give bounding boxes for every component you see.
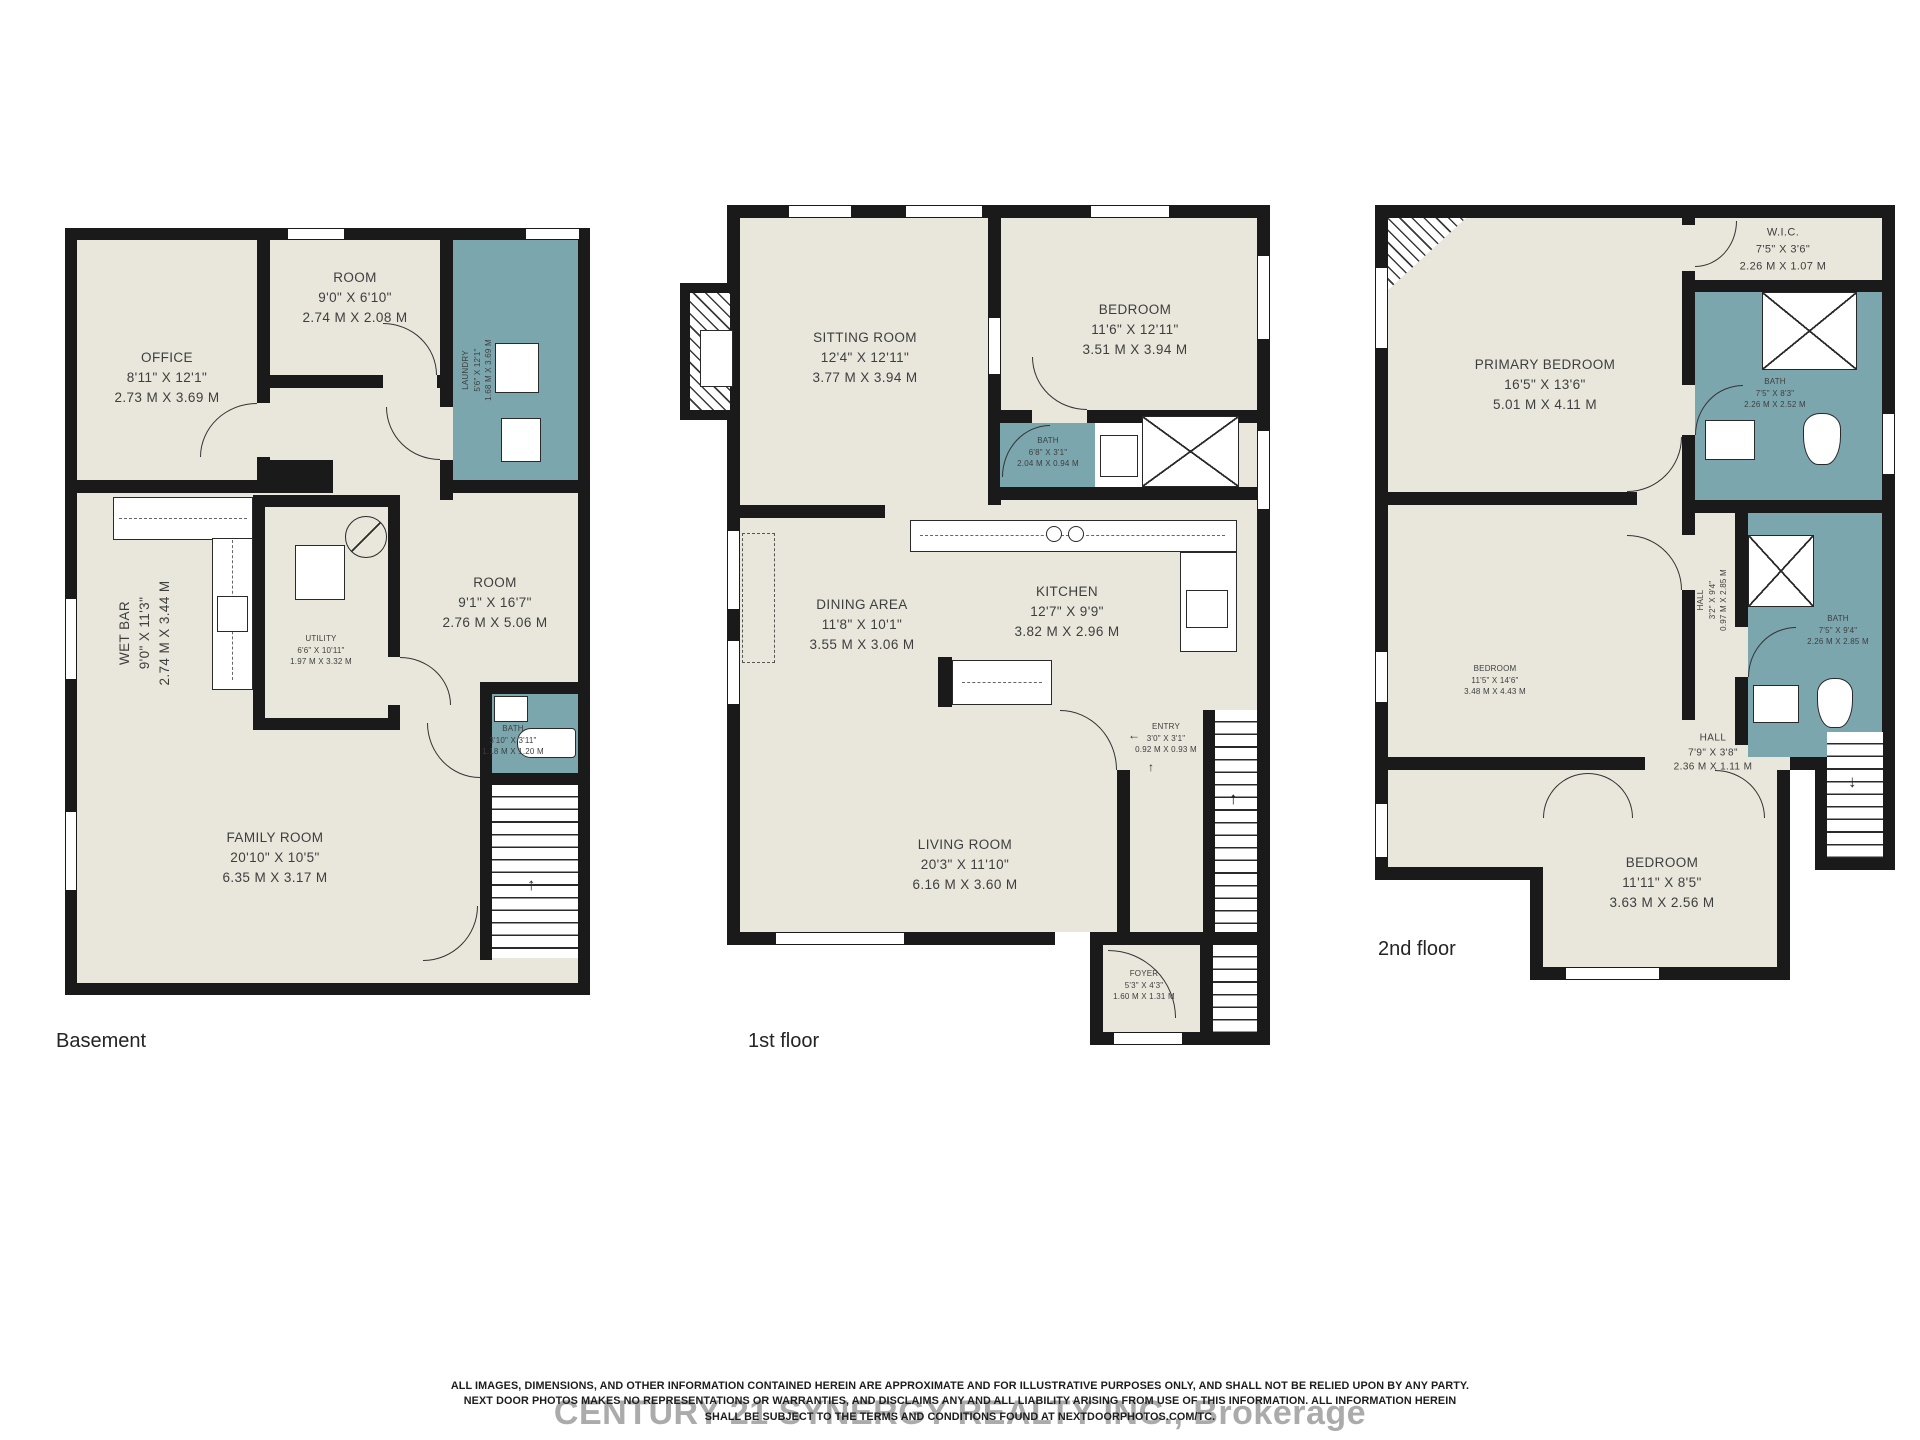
window: [1090, 205, 1170, 218]
room-name: W.I.C.: [1740, 225, 1827, 242]
floor-basement: ↑ OFFICE 8'11" X 12'1" 2.73 M X 3.69 M: [65, 228, 590, 995]
room-label-primary-bedroom: PRIMARY BEDROOM 16'5" X 13'6" 5.01 M X 4…: [1475, 355, 1616, 415]
room-label-bath: BATH 6'8" X 3'1" 2.04 M X 0.94 M: [1017, 435, 1079, 470]
room-label-sitting: SITTING ROOM 12'4" X 12'11" 3.77 M X 3.9…: [812, 328, 917, 388]
window: [905, 205, 983, 218]
window: [287, 228, 345, 240]
room-dim-metric: 2.74 M X 3.44 M: [155, 580, 175, 685]
room-dim-metric: 6.35 M X 3.17 M: [222, 868, 327, 888]
wall: [453, 480, 578, 493]
room-name: WET BAR: [115, 580, 135, 685]
room-dim-imperial: 3'2" X 9'4": [1706, 569, 1718, 631]
toilet-icon: [1803, 413, 1841, 465]
floor-first: ↑ ← ↑ SITTING ROOM 12'4" X 12'11" 3.77 M…: [680, 205, 1270, 1045]
kitchen-sink-icon: [1186, 590, 1228, 628]
room-dim-metric: 1.60 M X 1.31 M: [1113, 991, 1175, 1003]
room-name: OFFICE: [114, 348, 219, 368]
wall: [1735, 513, 1748, 627]
room-dim-metric: 6.16 M X 3.60 M: [912, 875, 1017, 895]
room-dim-metric: 2.74 M X 2.08 M: [302, 308, 407, 328]
disclaimer-line: SHALL BE SUBJECT TO THE TERMS AND CONDIT…: [0, 1410, 1920, 1425]
stair-landing-steps: [1213, 945, 1257, 1032]
pocket-door: [988, 317, 1001, 375]
room-name: HALL: [1695, 569, 1707, 631]
wall: [77, 480, 270, 493]
wall: [1695, 280, 1882, 292]
wall: [440, 460, 453, 500]
window: [788, 205, 852, 218]
wall: [440, 240, 453, 407]
room-dim-metric: 3.51 M X 3.94 M: [1082, 340, 1187, 360]
room-label-wet-bar: WET BAR 9'0" X 11'3" 2.74 M X 3.44 M: [115, 580, 175, 685]
room-dim-imperial: 7'5" X 8'3": [1744, 387, 1806, 399]
wall: [988, 218, 1001, 317]
wall: [1682, 505, 1695, 535]
wall: [388, 705, 400, 730]
room-label-office: OFFICE 8'11" X 12'1" 2.73 M X 3.69 M: [114, 348, 219, 408]
room-dim-metric: 2.04 M X 0.94 M: [1017, 458, 1079, 470]
room-name: ROOM: [302, 268, 407, 288]
room-dim-metric: 2.36 M X 1.11 M: [1674, 760, 1753, 775]
room-label-foyer: FOYER 5'3" X 4'3" 1.60 M X 1.31 M: [1113, 968, 1175, 1003]
window: [1257, 430, 1270, 510]
front-door-threshold: [1113, 1032, 1183, 1045]
room-dim-imperial: 5'3" X 4'3": [1113, 979, 1175, 991]
shower-icon: [1762, 292, 1857, 370]
caption-first-floor: 1st floor: [748, 1030, 819, 1053]
wall: [253, 495, 265, 730]
washer-icon: [501, 418, 541, 462]
disclaimer-text: ALL IMAGES, DIMENSIONS, AND OTHER INFORM…: [0, 1379, 1920, 1425]
window: [1882, 413, 1895, 475]
room-dim-imperial: 3'0" X 3'1": [1135, 732, 1197, 744]
room-dim-metric: 3.82 M X 2.96 M: [1014, 622, 1119, 642]
wall: [1682, 500, 1895, 513]
wall: [740, 505, 885, 518]
room-name: BATH: [1807, 613, 1869, 625]
room-label-living: LIVING ROOM 20'3" X 11'10" 6.16 M X 3.60…: [912, 835, 1017, 895]
room-name: BATH: [482, 723, 544, 735]
stairs-up-arrow: ↑: [527, 876, 536, 893]
room-label-hall-lower: HALL 7'9" X 3'8" 2.36 M X 1.11 M: [1674, 731, 1753, 775]
shower-icon: [1748, 535, 1814, 607]
room-dim-imperial: 11'8" X 10'1": [809, 615, 914, 635]
disclaimer-line: ALL IMAGES, DIMENSIONS, AND OTHER INFORM…: [0, 1379, 1920, 1394]
room-name: LAUNDRY: [460, 339, 472, 401]
room-dim-imperial: 11'11" X 8'5": [1609, 873, 1714, 893]
room-label-entry: ENTRY 3'0" X 3'1" 0.92 M X 0.93 M: [1135, 721, 1197, 756]
wall: [253, 718, 400, 730]
wall: [257, 460, 333, 493]
room-dim-imperial: 12'4" X 12'11": [812, 348, 917, 368]
room-label-bath-top: BATH 7'5" X 8'3" 2.26 M X 2.52 M: [1744, 376, 1806, 411]
room-name: BATH: [1744, 376, 1806, 388]
window: [525, 228, 580, 240]
room-dim-imperial: 9'1" X 16'7": [442, 593, 547, 613]
room-name: HALL: [1674, 731, 1753, 746]
room-name: ENTRY: [1135, 721, 1197, 733]
room-name: SITTING ROOM: [812, 328, 917, 348]
room-dim-metric: 3.55 M X 3.06 M: [809, 635, 914, 655]
room-dim-metric: 3.63 M X 2.56 M: [1609, 893, 1714, 913]
room-dim-metric: 0.97 M X 2.85 M: [1718, 569, 1730, 631]
room-label-room-top: ROOM 9'0" X 6'10" 2.74 M X 2.08 M: [302, 268, 407, 328]
room-label-room-mid: ROOM 9'1" X 16'7" 2.76 M X 5.06 M: [442, 573, 547, 633]
room-dim-imperial: 9'0" X 6'10": [302, 288, 407, 308]
room-dim-metric: 2.26 M X 2.85 M: [1807, 636, 1869, 648]
wall: [1682, 271, 1695, 385]
room-dim-imperial: 7'9" X 3'8": [1674, 746, 1753, 761]
wall: [480, 682, 578, 694]
room-dim-imperial: 3'10" X 3'11": [482, 734, 544, 746]
room-dim-metric: 3.48 M X 4.43 M: [1464, 686, 1526, 698]
first-floor-stairs: [1215, 710, 1257, 932]
room-dim-metric: 2.76 M X 5.06 M: [442, 613, 547, 633]
room-dim-imperial: 11'5" X 14'6": [1464, 674, 1526, 686]
room-name: PRIMARY BEDROOM: [1475, 355, 1616, 375]
room-name: BATH: [1017, 435, 1079, 447]
room-dim-metric: 2.26 M X 1.07 M: [1740, 259, 1827, 276]
wall: [388, 495, 400, 657]
chimney-flue: [700, 330, 733, 387]
bath-sink-icon: [494, 696, 528, 722]
basement-stairs: [492, 785, 578, 958]
electrical-meter-icon: [345, 516, 387, 558]
utility-panel-icon: [295, 545, 345, 600]
room-dim-imperial: 7'5" X 9'4": [1807, 624, 1869, 636]
room-label-laundry: LAUNDRY 5'6" X 12'1" 1.68 M X 3.69 M: [460, 339, 495, 401]
wall: [1388, 492, 1637, 505]
room-dim-metric: 1.18 M X 1.20 M: [482, 746, 544, 758]
room-dim-imperial: 20'10" X 10'5": [222, 848, 327, 868]
wet-bar-sink-icon: [217, 596, 248, 632]
room-dim-imperial: 9'0" X 11'3": [135, 580, 155, 685]
room-label-hall-upper: HALL 3'2" X 9'4" 0.97 M X 2.85 M: [1695, 569, 1730, 631]
room-name: ROOM: [442, 573, 547, 593]
disclaimer-line: NEXT DOOR PHOTOS MAKES NO REPRESENTATION…: [0, 1394, 1920, 1409]
toilet-icon: [1817, 678, 1853, 728]
room-dim-metric: 5.01 M X 4.11 M: [1475, 395, 1616, 415]
window: [1257, 255, 1270, 340]
dining-hutch: [742, 533, 775, 663]
room-name: BEDROOM: [1609, 853, 1714, 873]
wall: [1000, 410, 1032, 423]
window: [1375, 651, 1388, 703]
stove-burner-icon: [1046, 526, 1062, 542]
wall: [253, 495, 400, 507]
room-label-bath: BATH 3'10" X 3'11" 1.18 M X 1.20 M: [482, 723, 544, 758]
room-dim-imperial: 20'3" X 11'10": [912, 855, 1017, 875]
window: [65, 598, 77, 680]
window: [775, 932, 905, 945]
entry-up-arrow: ↑: [1148, 761, 1154, 773]
window: [1375, 803, 1388, 858]
room-label-bedroom: BEDROOM 11'6" X 12'11" 3.51 M X 3.94 M: [1082, 300, 1187, 360]
caption-basement: Basement: [56, 1030, 146, 1053]
window: [727, 530, 740, 610]
stairs-up-arrow: ↑: [1229, 790, 1238, 807]
room-dim-metric: 0.92 M X 0.93 M: [1135, 744, 1197, 756]
wall: [1682, 435, 1695, 505]
room-dim-imperial: 12'7" X 9'9": [1014, 602, 1119, 622]
wall: [1117, 770, 1130, 932]
second-floor-stairs: [1827, 732, 1883, 858]
shower-icon: [1142, 416, 1239, 487]
wall: [1682, 590, 1695, 720]
room-name: BEDROOM: [1464, 663, 1526, 675]
room-dim-imperial: 11'6" X 12'11": [1082, 320, 1187, 340]
bath-sink-icon: [1100, 435, 1138, 477]
room-dim-imperial: 8'11" X 12'1": [114, 368, 219, 388]
room-name: KITCHEN: [1014, 582, 1119, 602]
opening: [1055, 932, 1090, 945]
room-name: LIVING ROOM: [912, 835, 1017, 855]
wall: [1682, 218, 1695, 225]
room-dim-imperial: 6'8" X 3'1": [1017, 446, 1079, 458]
floorplan-canvas: ↑ OFFICE 8'11" X 12'1" 2.73 M X 3.69 M: [0, 0, 1920, 1440]
room-dim-metric: 2.26 M X 2.52 M: [1744, 399, 1806, 411]
stairs-down-arrow: ↓: [1848, 773, 1857, 790]
wall: [1000, 487, 1257, 500]
room-label-bedroom-lower: BEDROOM 11'11" X 8'5" 3.63 M X 2.56 M: [1609, 853, 1714, 913]
room-label-bath-mid: BATH 7'5" X 9'4" 2.26 M X 2.85 M: [1807, 613, 1869, 648]
laundry-sink-icon: [495, 343, 539, 393]
window: [65, 811, 77, 891]
room-name: FOYER: [1113, 968, 1175, 980]
counter-dash-line: [119, 518, 247, 519]
room-dim-metric: 3.77 M X 3.94 M: [812, 368, 917, 388]
wall: [480, 773, 578, 785]
counter-dash-line: [962, 682, 1042, 683]
window: [1375, 267, 1388, 349]
stove-burner-icon: [1068, 526, 1084, 542]
room-label-kitchen: KITCHEN 12'7" X 9'9" 3.82 M X 2.96 M: [1014, 582, 1119, 642]
window: [1565, 967, 1660, 980]
room-dim-imperial: 16'5" X 13'6": [1475, 375, 1616, 395]
room-dim-metric: 1.68 M X 3.69 M: [483, 339, 495, 401]
wall: [938, 657, 952, 707]
room-label-family-room: FAMILY ROOM 20'10" X 10'5" 6.35 M X 3.17…: [222, 828, 327, 888]
room-name: BEDROOM: [1082, 300, 1187, 320]
room-label-dining: DINING AREA 11'8" X 10'1" 3.55 M X 3.06 …: [809, 595, 914, 655]
room-name: UTILITY: [290, 633, 352, 645]
room-dim-metric: 1.97 M X 3.32 M: [290, 656, 352, 668]
room-label-utility: UTILITY 6'6" X 10'11" 1.97 M X 3.32 M: [290, 633, 352, 668]
wall: [1203, 710, 1215, 932]
wall: [270, 375, 383, 388]
room-dim-imperial: 7'5" X 3'6": [1740, 242, 1827, 259]
wall: [480, 785, 492, 960]
room-name: DINING AREA: [809, 595, 914, 615]
floor-second: ↓ W.I.C. 7'5" X 3'6" 2.26 M X 1.07 M PRI…: [1375, 205, 1895, 980]
room-label-wic: W.I.C. 7'5" X 3'6" 2.26 M X 1.07 M: [1740, 225, 1827, 276]
room-dim-imperial: 5'6" X 12'1": [471, 339, 483, 401]
room-dim-imperial: 6'6" X 10'11": [290, 644, 352, 656]
room-label-bedroom-mid: BEDROOM 11'5" X 14'6" 3.48 M X 4.43 M: [1464, 663, 1526, 698]
wall: [257, 240, 270, 403]
window: [727, 640, 740, 705]
bath-sink-icon: [1753, 685, 1799, 723]
room-dim-metric: 2.73 M X 3.69 M: [114, 388, 219, 408]
room-name: FAMILY ROOM: [222, 828, 327, 848]
caption-second-floor: 2nd floor: [1378, 938, 1456, 961]
